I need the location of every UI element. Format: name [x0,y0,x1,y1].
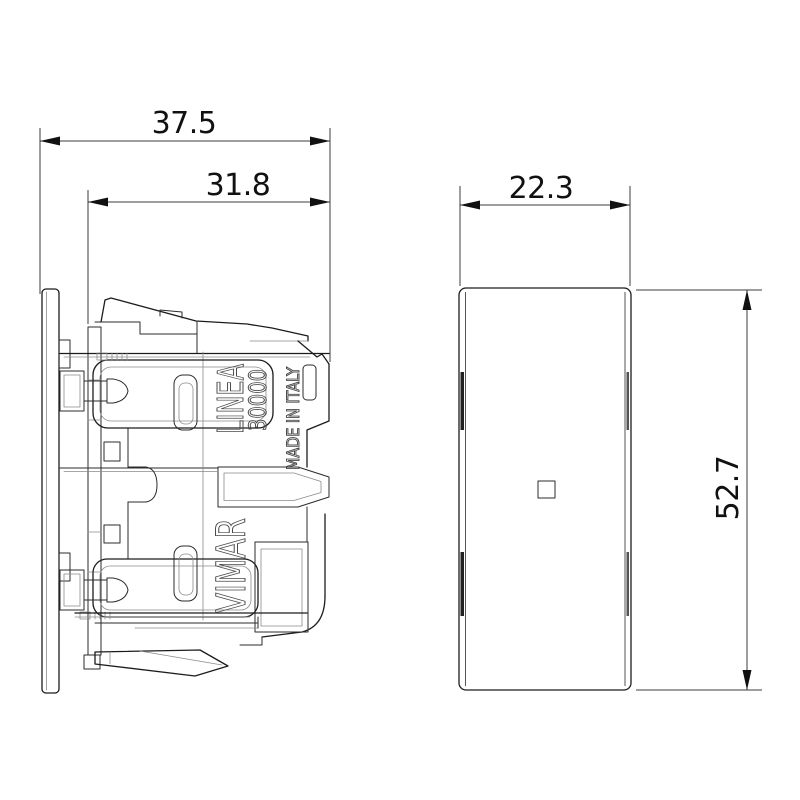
side-clip [627,372,630,430]
body-top-profile [60,298,329,364]
dimension-overall-depth: 37.5 [40,106,330,362]
keyhole-slots [174,375,197,601]
side-clip [461,552,465,616]
dim-arrow [743,290,752,310]
dim-label-module-width: 22.3 [509,171,574,206]
dim-arrow [310,137,330,146]
dim-label-overall-depth: 37.5 [152,106,217,141]
center-square-marker [538,481,555,498]
side-view: LINEA 30000 MADE IN ITALY VIMAR [42,289,329,693]
bottom-claw [75,613,307,676]
engraving-30000: 30000 [244,369,272,431]
dim-arrow [743,670,752,690]
terminal-recess [255,542,308,632]
dimension-module-height: 52.7 [636,290,762,690]
dim-arrow [310,198,330,207]
engravings: LINEA 30000 MADE IN ITALY VIMAR [209,364,303,613]
engraving-vimar: VIMAR [209,518,255,613]
dim-label-body-depth: 31.8 [206,168,271,203]
dim-arrow [40,137,60,146]
front-view [459,288,631,690]
dim-arrow [460,201,480,210]
label-slot [303,365,316,400]
dim-arrow [610,201,630,210]
side-clip [461,372,465,430]
dim-arrow [88,198,108,207]
dimensions: 37.5 31.8 22.3 52.7 [40,106,762,690]
dimension-module-width: 22.3 [460,171,630,286]
drawing-canvas: LINEA 30000 MADE IN ITALY VIMAR 37.5 [0,0,800,800]
dim-label-module-height: 52.7 [711,456,746,521]
engraving-made-in-italy: MADE IN ITALY [284,366,303,470]
clip-squares [104,442,120,543]
technical-drawing: LINEA 30000 MADE IN ITALY VIMAR 37.5 [0,0,800,800]
module-face [459,288,631,690]
side-clip [627,552,630,616]
latch-plunger [107,379,128,403]
mounting-plate [42,289,59,693]
dimension-body-depth: 31.8 [88,168,330,324]
latch-plunger [107,578,128,602]
